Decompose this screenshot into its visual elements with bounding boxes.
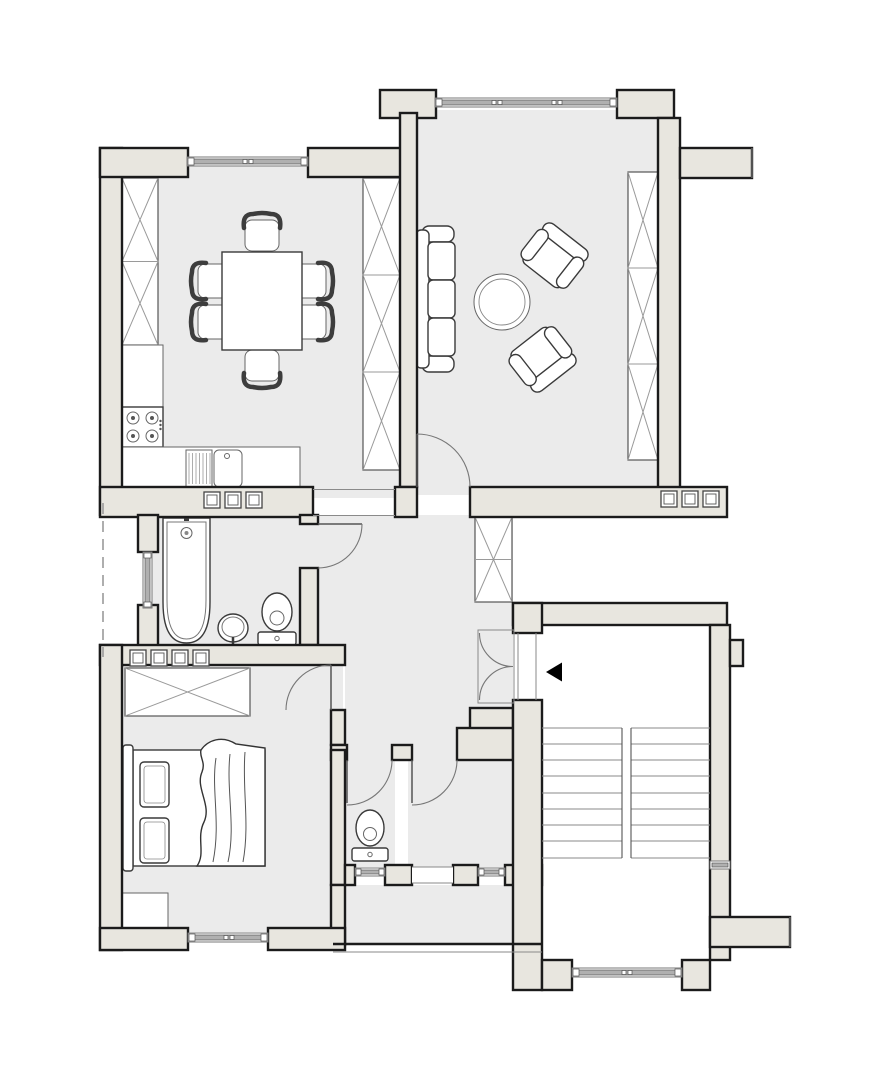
storage-window [478, 868, 505, 876]
double-bed [123, 739, 265, 871]
wardrobe-hall [475, 517, 512, 602]
wardrobe-dining-right [363, 178, 400, 470]
floor-plan-page [0, 0, 892, 1080]
wc-window [355, 868, 385, 876]
sink-drainboard [186, 450, 212, 487]
entrance-arrow [546, 663, 562, 682]
stair-bottom-window [572, 968, 682, 977]
coffee-table [474, 274, 530, 330]
bathroom-shaft-window [143, 552, 152, 608]
bathtub [163, 500, 210, 643]
faucet [225, 454, 230, 459]
wardrobe-left [122, 178, 158, 345]
dining-window [187, 157, 308, 166]
headboard [123, 745, 133, 871]
sofa [416, 226, 455, 372]
stairwell [542, 663, 710, 859]
wardrobe-living [628, 172, 658, 460]
stair-steps [542, 728, 710, 858]
kitchen-counter [122, 447, 300, 490]
living-window [435, 98, 617, 107]
tall-cabinet [122, 345, 163, 407]
stair-right-small-window [710, 861, 730, 869]
dining-table [222, 252, 302, 350]
stove [122, 407, 163, 447]
corridor-floor [333, 885, 513, 943]
floor-plan-drawing [0, 0, 892, 1080]
storage-floor [408, 760, 513, 867]
bedroom-window [188, 933, 268, 942]
blanket [197, 739, 265, 866]
wardrobe-bedroom [125, 668, 250, 716]
